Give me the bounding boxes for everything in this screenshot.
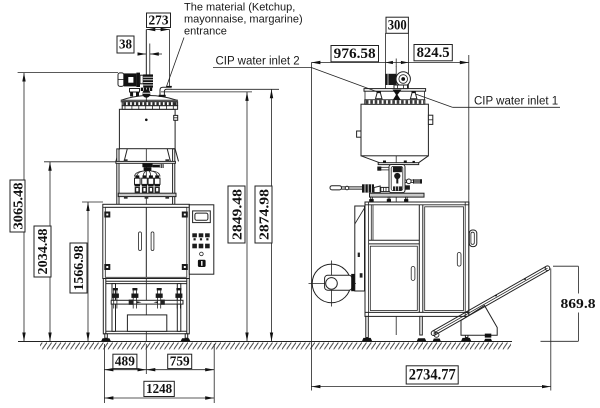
svg-text:273: 273 xyxy=(149,13,169,28)
svg-text:CIP water inlet 1: CIP water inlet 1 xyxy=(474,96,558,108)
svg-text:2849.48: 2849.48 xyxy=(229,189,244,240)
svg-text:2034.48: 2034.48 xyxy=(35,228,50,274)
svg-text:mayonnaise, margarine): mayonnaise, margarine) xyxy=(184,14,303,26)
svg-text:1248: 1248 xyxy=(146,382,172,397)
svg-text:489: 489 xyxy=(115,354,135,369)
svg-text:38: 38 xyxy=(119,37,132,52)
svg-text:CIP water inlet 2: CIP water inlet 2 xyxy=(216,56,300,68)
svg-text:976.58: 976.58 xyxy=(334,46,376,62)
svg-text:824.5: 824.5 xyxy=(417,45,450,61)
svg-text:3065.48: 3065.48 xyxy=(10,182,25,229)
svg-text:869.8: 869.8 xyxy=(561,296,596,311)
svg-text:2874.98: 2874.98 xyxy=(256,189,271,240)
svg-text:1566.98: 1566.98 xyxy=(71,245,86,290)
svg-text:2734.77: 2734.77 xyxy=(409,367,456,384)
svg-text:300: 300 xyxy=(388,18,407,34)
svg-text:The material (Ketchup,: The material (Ketchup, xyxy=(184,2,295,14)
svg-text:entrance: entrance xyxy=(184,26,227,38)
svg-text:759: 759 xyxy=(170,354,190,369)
